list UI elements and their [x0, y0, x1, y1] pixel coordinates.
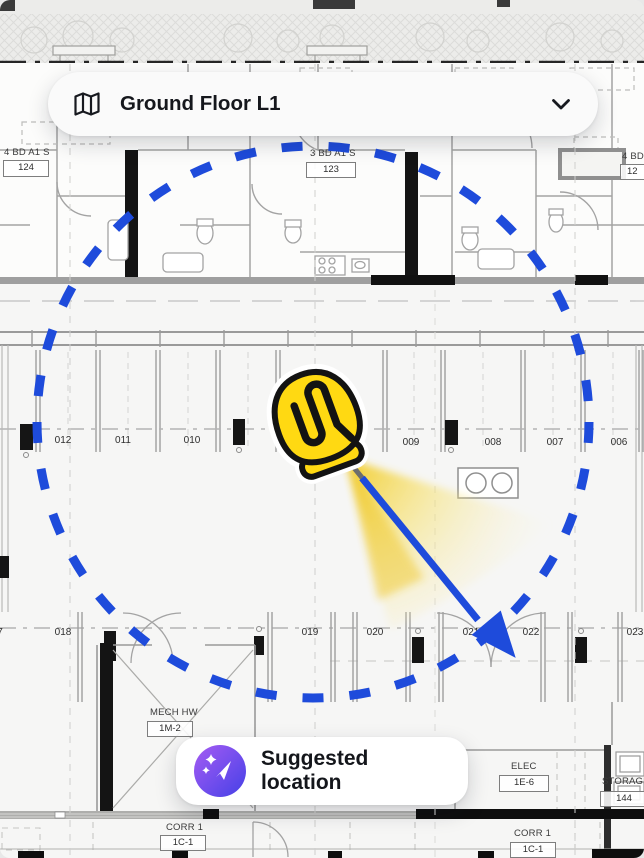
chevron-down-icon[interactable] — [548, 91, 574, 117]
suggestion-label: Suggested location — [261, 747, 450, 795]
worker-marker[interactable] — [262, 361, 373, 483]
floor-selector[interactable]: Ground Floor L1 — [48, 72, 598, 136]
sparkle-navigation-icon — [194, 745, 246, 797]
map-screen: 4 BD A1 S 124 3 BD A1 S 123 4 BD 12 012 … — [0, 0, 644, 858]
suggested-location-chip[interactable]: Suggested location — [176, 737, 468, 805]
hard-hat-icon — [262, 361, 373, 483]
floor-selector-label: Ground Floor L1 — [120, 92, 281, 116]
map-icon — [72, 91, 102, 117]
